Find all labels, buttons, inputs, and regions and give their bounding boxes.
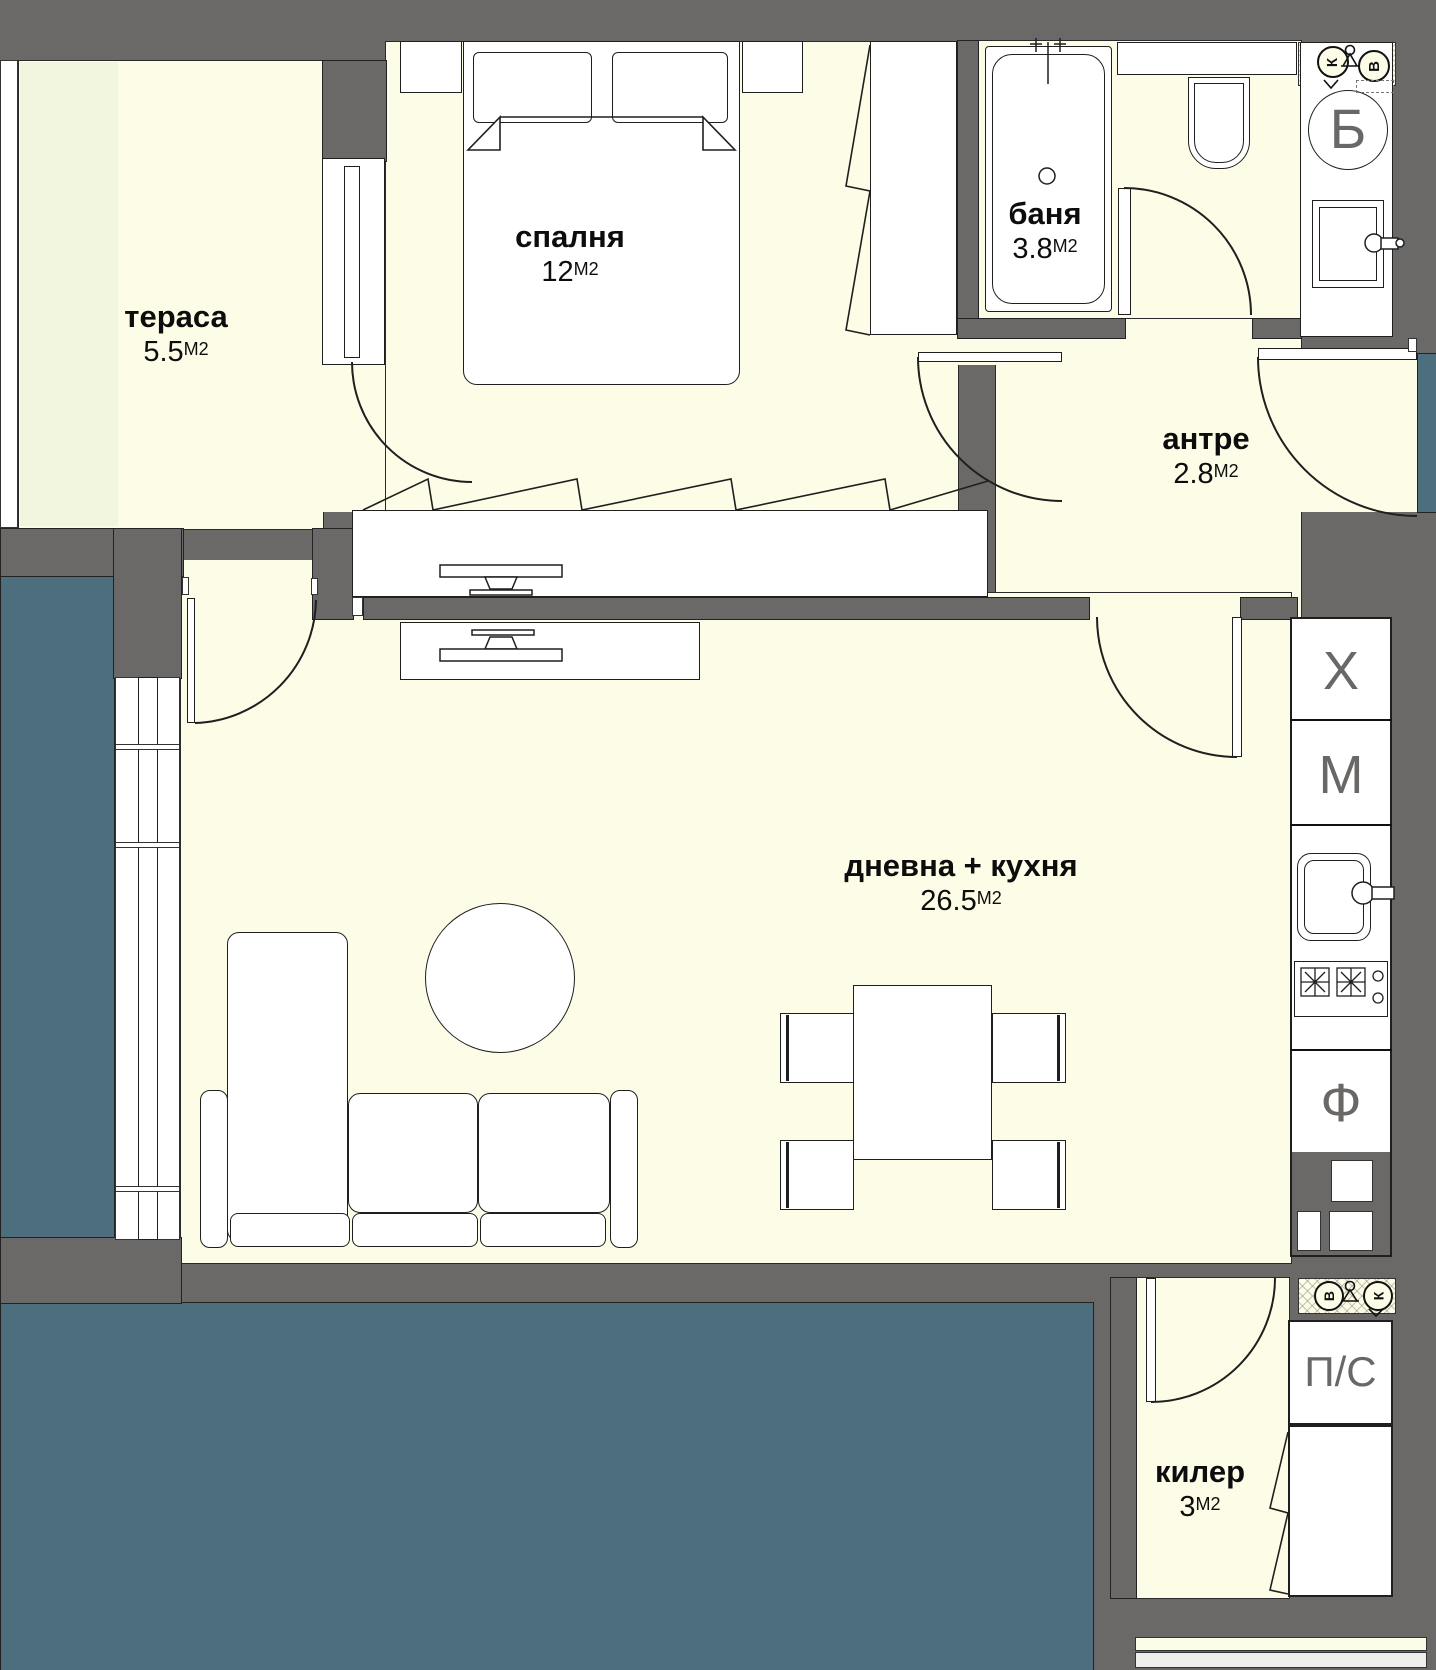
bathtub-inner: [992, 54, 1105, 304]
kitchen-divider-2: [1290, 824, 1392, 826]
hall-living-passage: [1097, 600, 1237, 616]
sewer-riser-top: К: [1317, 46, 1349, 78]
room-label-bathroom: баня 3.8М2: [1008, 197, 1081, 266]
toilet-cistern: [1117, 42, 1297, 75]
sofa-seat-1: [230, 1213, 350, 1247]
oven-letter: Ф: [1290, 1072, 1392, 1134]
sofa-armrest-left: [200, 1090, 228, 1248]
pantry-cabinet: [1288, 1425, 1393, 1597]
terrace-glazing: [0, 60, 18, 528]
riser-dashed-box: [1356, 80, 1394, 93]
sill-left: [352, 597, 363, 616]
sewer-riser-bottom: К: [1363, 1281, 1393, 1311]
terrace-living-door-leaf: [187, 598, 195, 723]
shaft-window-2: [1297, 1211, 1321, 1251]
kitchen-sink-inner: [1304, 860, 1364, 934]
window-divider-2: [115, 842, 180, 848]
water-riser-bottom: В: [1314, 1281, 1344, 1311]
nightstand-right: [742, 41, 803, 93]
wall-living-north: [363, 597, 1090, 620]
washing-machine-letter: М: [1290, 744, 1392, 806]
wall-pantry-left: [1110, 1277, 1137, 1599]
exterior-bottom: [0, 1302, 1094, 1670]
bottom-right-strip-gray: [1135, 1652, 1427, 1668]
chair-back-lb: [786, 1142, 789, 1208]
hall-bath-passage: [1124, 330, 1252, 342]
tv-stand: [400, 622, 700, 680]
shaft-window-1: [1331, 1160, 1373, 1202]
room-label-bedroom: спалня 12М2: [515, 220, 625, 289]
window-divider-1: [115, 744, 180, 750]
wardrobe-tall: [870, 41, 957, 335]
boiler-letter: Б: [1308, 96, 1388, 161]
bottom-right-strip-cream: [1135, 1637, 1427, 1651]
chair-right-bottom: [992, 1140, 1066, 1210]
wall-bedroom-bath: [957, 40, 979, 339]
sofa-chaise: [227, 932, 348, 1242]
living-door-leaf: [1232, 617, 1242, 757]
room-label-terrace: тераса 5.5М2: [124, 300, 227, 369]
sofa-back-cushion-1: [348, 1093, 478, 1213]
front-door-leaf: [1258, 348, 1417, 360]
wall-below-window: [0, 1237, 182, 1304]
floor-plan: Б Х М Ф П/С К В: [0, 0, 1436, 1670]
wall-bath-hall-left: [957, 318, 1126, 339]
hall-floor-patch-door: [1300, 352, 1417, 512]
room-label-pantry: килер 3М2: [1155, 1455, 1245, 1524]
shaft-window-3: [1329, 1211, 1373, 1251]
chair-back-rt: [1057, 1015, 1060, 1081]
pillow-left: [473, 52, 592, 123]
bath-sink-inner: [1319, 207, 1377, 281]
terrace-door-leaf: [344, 166, 360, 358]
terrace-living-jamb-left: [182, 577, 189, 595]
wall-terrace-corner: [312, 528, 354, 620]
exterior-left: [0, 575, 115, 1239]
front-door-jamb: [1408, 338, 1417, 352]
bedroom-floor-patch: [322, 365, 385, 512]
chair-left-bottom: [780, 1140, 854, 1210]
living-window-glass: [138, 677, 158, 1240]
dining-table: [853, 985, 992, 1160]
exterior-corridor: [1417, 353, 1436, 513]
room-label-hall: антре 2.8М2: [1162, 422, 1249, 491]
sofa-seat-3: [480, 1213, 606, 1247]
fridge-letter: Х: [1290, 640, 1392, 702]
wall-terrace-bedroom: [322, 60, 387, 162]
water-riser-top: В: [1358, 50, 1390, 82]
kitchen-divider-3: [1290, 1049, 1392, 1051]
washer-dryer-letter: П/С: [1288, 1348, 1393, 1396]
terrace-floor-tint: [20, 62, 118, 526]
pillow-right: [612, 52, 728, 123]
sofa-back-cushion-2: [478, 1093, 610, 1213]
nightstand-left: [400, 41, 462, 93]
sofa-armrest-right: [610, 1090, 638, 1248]
pantry-floor: [1135, 1277, 1290, 1599]
kitchen-divider-1: [1290, 719, 1392, 721]
living-opening-patch: [182, 560, 316, 595]
bedroom-door-leaf: [918, 352, 1062, 362]
chair-back-lt: [786, 1015, 789, 1081]
bathroom-door-leaf: [1118, 188, 1131, 315]
wall-bath-hall-right: [1252, 318, 1302, 339]
wall-above-window: [113, 528, 182, 679]
toilet-bowl-inner: [1194, 83, 1244, 163]
terrace-living-jamb-right: [311, 578, 318, 595]
wardrobe-band: [352, 510, 988, 597]
window-divider-3: [115, 1186, 180, 1192]
hall-floor: [995, 318, 1302, 620]
stove: [1294, 961, 1388, 1017]
chair-back-rb: [1057, 1142, 1060, 1208]
chair-right-top: [992, 1013, 1066, 1083]
sofa-seat-2: [352, 1213, 478, 1247]
pantry-door-leaf: [1146, 1278, 1156, 1402]
chair-left-top: [780, 1013, 854, 1083]
room-label-living: дневна + кухня 26.5М2: [844, 849, 1077, 918]
coffee-table: [425, 903, 575, 1053]
